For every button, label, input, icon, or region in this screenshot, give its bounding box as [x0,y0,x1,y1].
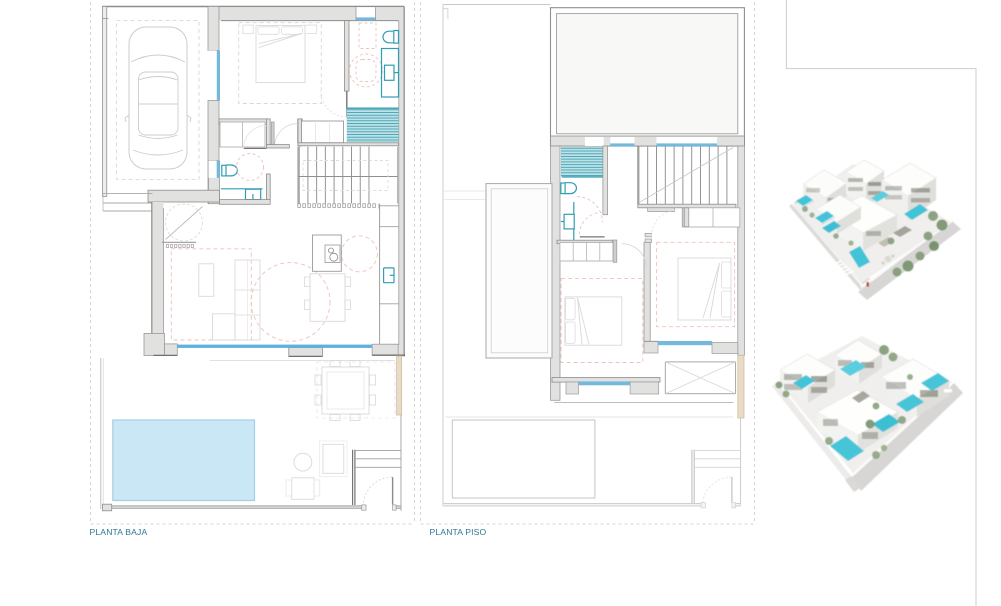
svg-text:PLANTA BAJA: PLANTA BAJA [90,527,148,537]
svg-text:PLANTA PISO: PLANTA PISO [430,527,487,537]
